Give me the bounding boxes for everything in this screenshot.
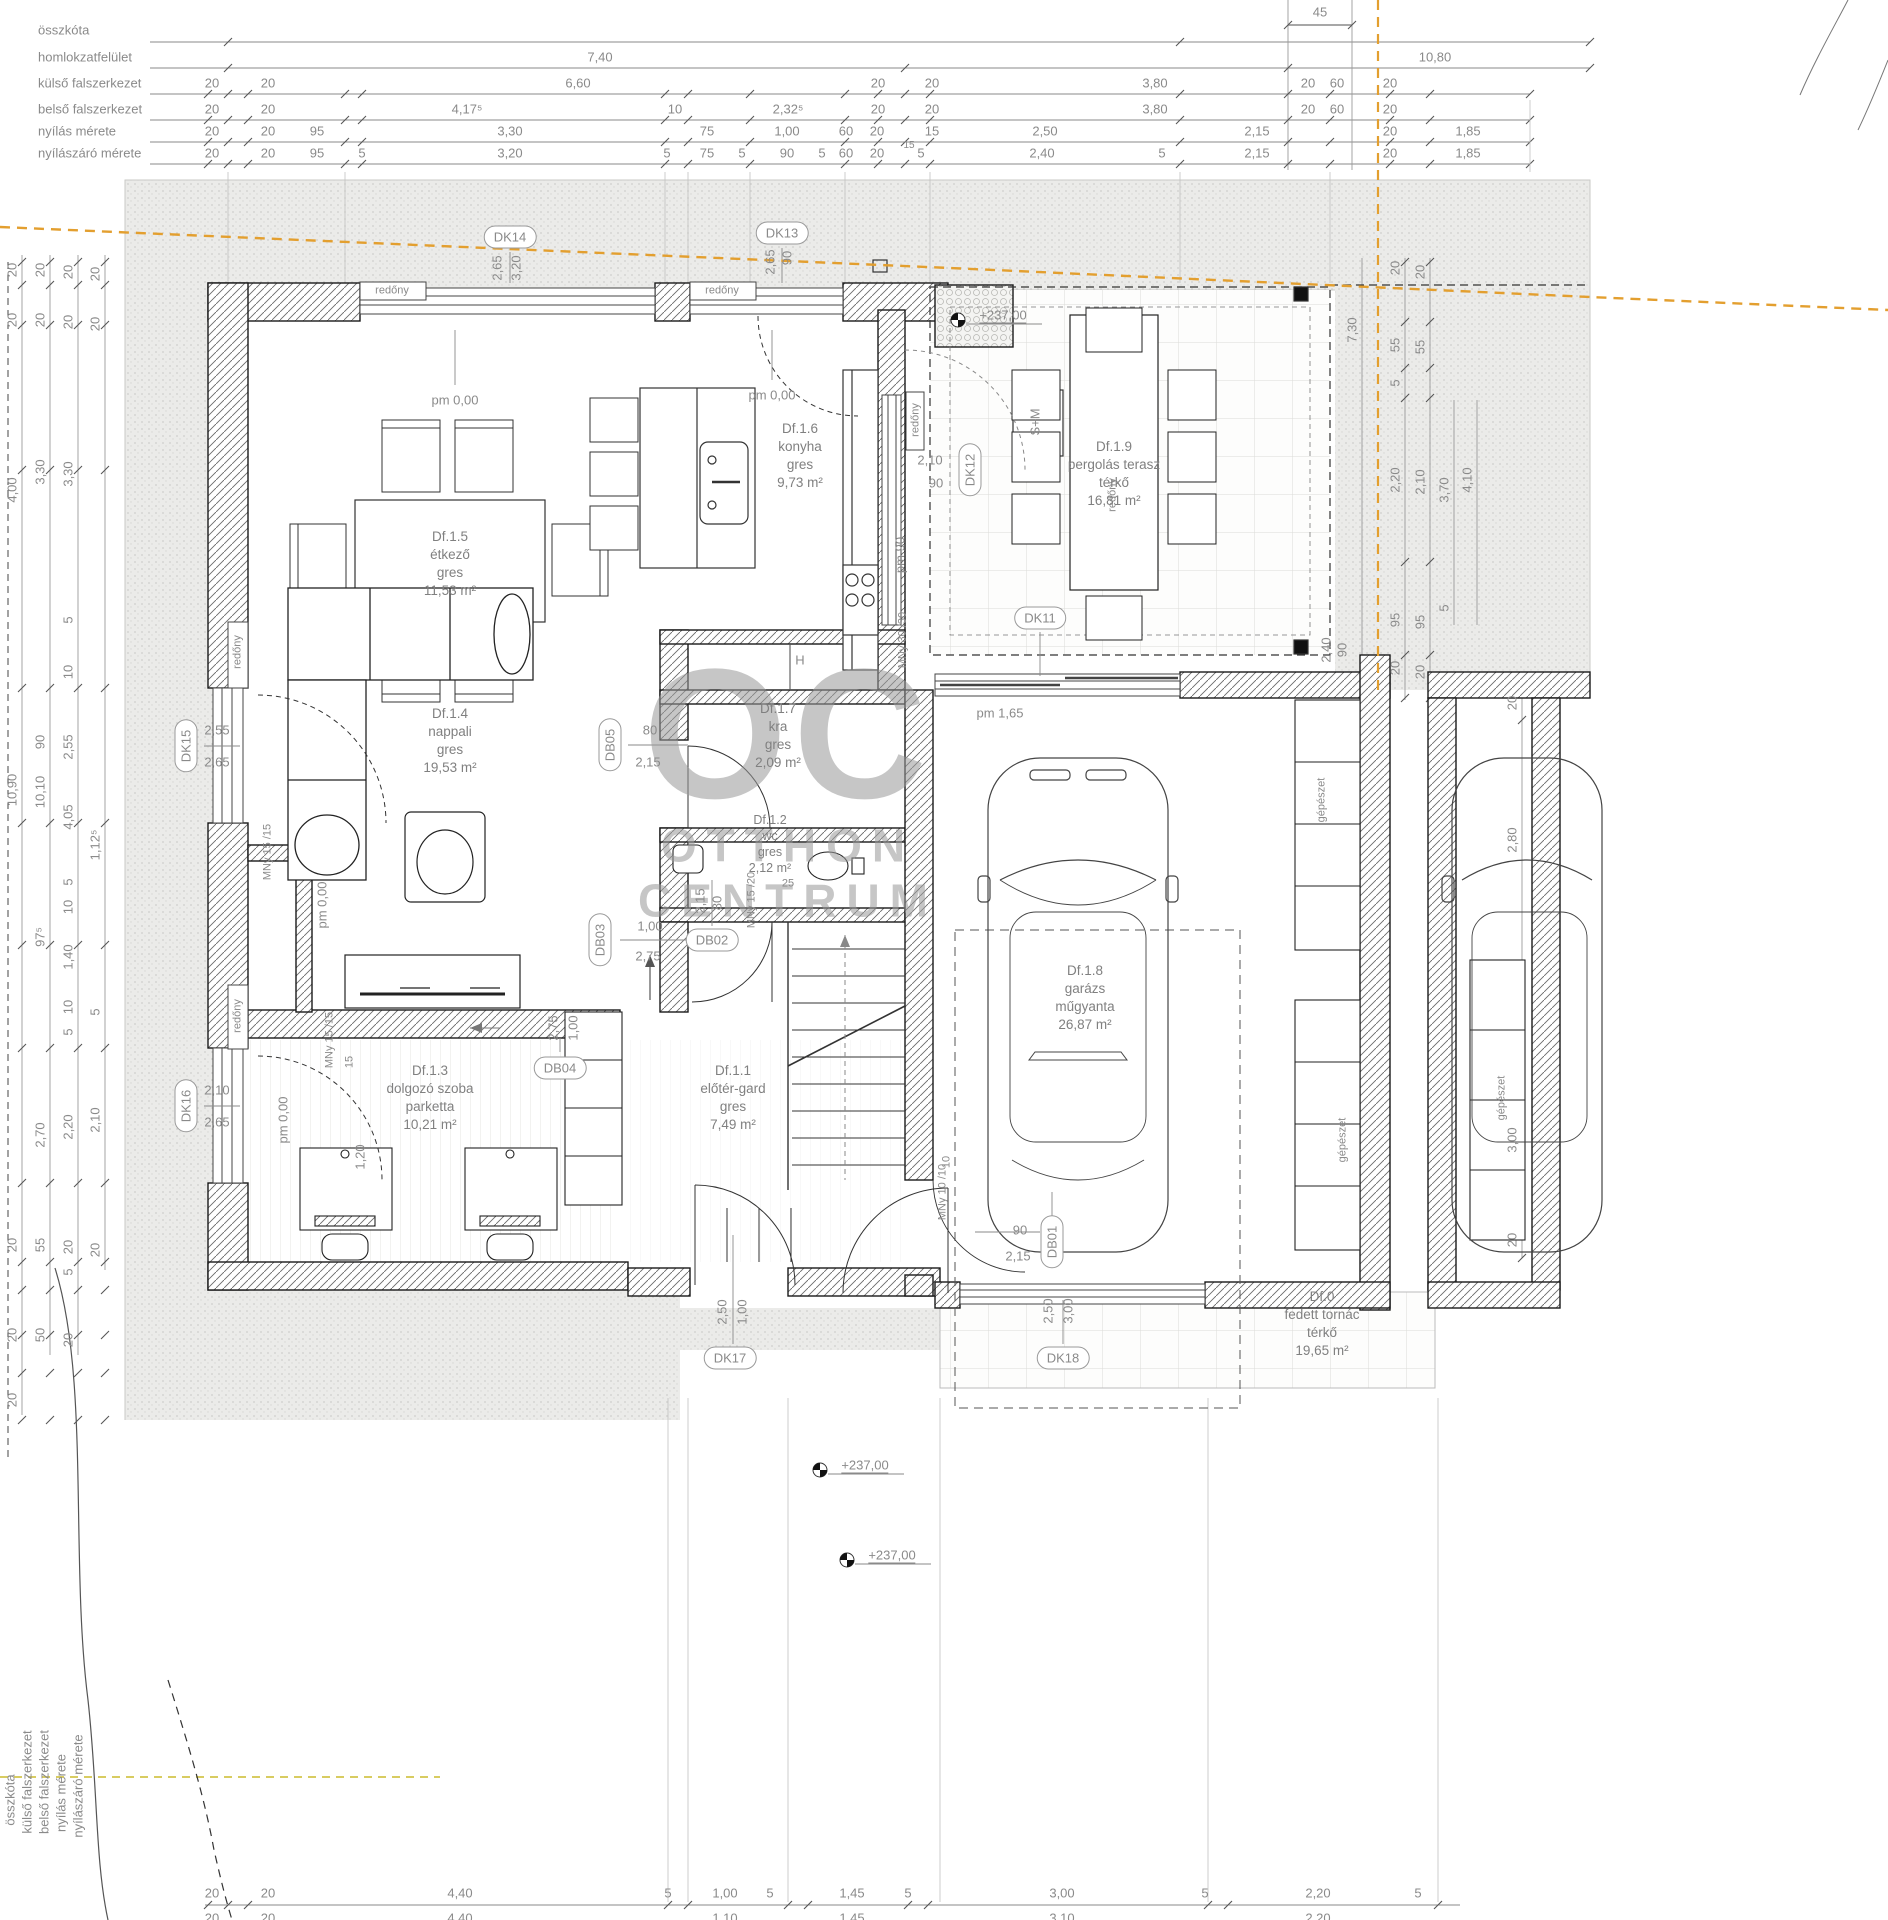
dim-label: 3,00	[1506, 1127, 1519, 1152]
dim-label: külső falszerkezet	[38, 77, 141, 90]
dim-label: 20	[261, 1887, 275, 1900]
dim-label: 45	[1313, 6, 1327, 19]
dim-label: 1,85	[1455, 125, 1480, 138]
dim-label: 20	[62, 265, 75, 279]
dim-label: 4,17⁵	[452, 103, 483, 116]
dim-label: 2,15	[1005, 1250, 1030, 1263]
room-label-Df.1.4: Df.1.4nappaligres19,53 m²	[423, 705, 476, 777]
dim-label: 2,75	[635, 950, 660, 963]
dim-label: 4,00	[6, 477, 19, 502]
dim-label: 90	[929, 477, 943, 490]
dim-label: 20	[6, 263, 19, 277]
plan-drawing	[0, 0, 1888, 1920]
dim-label: 2,50	[716, 1299, 729, 1324]
dim-label: 3,80	[1142, 103, 1167, 116]
dim-label: 20	[1506, 1233, 1519, 1247]
dim-label: MNy 15 /15	[263, 824, 274, 880]
dim-label: redőny	[911, 403, 922, 437]
dim-label: 20	[62, 1333, 75, 1347]
armchair	[405, 812, 485, 902]
dim-label: 25	[782, 879, 794, 890]
dim-label: 5	[917, 147, 924, 160]
dim-label: nyílászáró mérete	[38, 147, 141, 160]
dim-label: 90	[780, 147, 794, 160]
dim-label: 90	[1336, 643, 1349, 657]
dim-label: 20	[62, 1240, 75, 1254]
dim-label: 60	[1330, 77, 1344, 90]
dim-label: 5	[358, 147, 365, 160]
dim-label: 10,10	[34, 776, 47, 809]
dim-label: 15	[925, 125, 939, 138]
opening-tag-DB03: DB03	[589, 914, 612, 967]
dim-label: 20	[205, 103, 219, 116]
opening-tag-DK17: DK17	[704, 1347, 757, 1370]
opening-tag-DB02: DB02	[686, 929, 739, 952]
dim-label: 2,70	[34, 1122, 47, 1147]
dim-label: 10	[62, 1000, 75, 1014]
dim-label: gépészet	[1338, 1118, 1349, 1163]
dim-label: 1,85	[1455, 147, 1480, 160]
dim-label: 20	[870, 147, 884, 160]
dim-label: 7,30	[1346, 317, 1359, 342]
dim-label: 5	[663, 147, 670, 160]
room-label-Df.1.2: Df.1.2wcgres2,12 m²	[749, 812, 791, 876]
dim-label: 1,45	[839, 1887, 864, 1900]
dim-label: 5	[738, 147, 745, 160]
dim-label: 2,50	[1032, 125, 1057, 138]
dim-label: 5	[62, 616, 75, 623]
dim-label: pm 90	[894, 537, 907, 573]
dim-label: 20	[205, 1912, 219, 1920]
dim-label: 2,55	[62, 734, 75, 759]
dim-label: 20	[1506, 696, 1519, 710]
dim-label: pm 0,00	[432, 394, 479, 407]
dim-label: pm 0,00	[316, 882, 329, 929]
dim-label: 20	[261, 103, 275, 116]
opening-tag-DK12: DK12	[959, 444, 982, 497]
dim-label: 10	[62, 900, 75, 914]
dim-label: 2,65	[764, 249, 777, 274]
floor-plan-canvas: OC OTTHON CENTRUM összkótahomlokzatfelül…	[0, 0, 1888, 1920]
dim-label: 20	[261, 125, 275, 138]
dim-label: 90	[34, 735, 47, 749]
dim-label: 15	[903, 141, 914, 151]
dim-label: 50	[34, 1328, 47, 1342]
bottom-dimension-lines	[205, 1905, 1460, 1920]
dim-label: 95	[1389, 613, 1402, 627]
dim-label: 20	[925, 77, 939, 90]
dim-label: 20	[6, 1393, 19, 1407]
dim-label: 20	[205, 125, 219, 138]
dim-label: 2,15	[635, 756, 660, 769]
dim-label: 2,80	[1506, 827, 1519, 852]
dim-label: belső falszerkezet	[38, 103, 142, 116]
dim-label: 2,10	[204, 1084, 229, 1097]
dim-label: 10	[668, 103, 682, 116]
dim-label: 55	[1389, 338, 1402, 352]
dim-label: 2,65	[204, 1116, 229, 1129]
dim-label: 3,30	[34, 459, 47, 484]
dim-label: 2,10	[917, 454, 942, 467]
dim-label: homlokzatfelület	[38, 51, 132, 64]
dim-label: MNy 10 /10	[938, 1164, 949, 1220]
tv-cabinet	[345, 955, 520, 1008]
dim-label: 20	[261, 1912, 275, 1920]
dim-label: 3,20	[497, 147, 522, 160]
dim-label: +237,00	[841, 1459, 888, 1474]
dim-label: 5	[1438, 604, 1451, 611]
dim-label: 1,00	[736, 1299, 749, 1324]
dim-label: 55	[1414, 340, 1427, 354]
dim-label: 6,60	[565, 77, 590, 90]
dim-label: 20	[1383, 103, 1397, 116]
dim-label: redőny	[233, 999, 244, 1033]
dim-label: 20	[205, 147, 219, 160]
dim-label: 3,20	[510, 255, 523, 280]
dim-label: 2,20	[62, 1114, 75, 1139]
dim-label: 20	[6, 313, 19, 327]
opening-tag-DK18: DK18	[1037, 1347, 1090, 1370]
dim-label: 20	[89, 1243, 102, 1257]
opening-tag-DK11: DK11	[1014, 607, 1066, 630]
dim-label: 2,20	[1305, 1887, 1330, 1900]
dim-label: 3,10	[1049, 1912, 1074, 1920]
dim-label: 90	[781, 251, 794, 265]
dim-label: 5	[818, 147, 825, 160]
dim-label: 10,90	[6, 774, 19, 807]
dim-label: redőny	[375, 286, 409, 297]
dim-label: 3,30	[62, 461, 75, 486]
dim-label: 95	[310, 125, 324, 138]
dim-label: 97⁵	[34, 927, 47, 947]
dim-label: 20	[1389, 261, 1402, 275]
dim-label: külső falszerkezet	[21, 1730, 34, 1833]
dim-label: 1,00	[637, 920, 662, 933]
dim-label: 20	[205, 1887, 219, 1900]
dim-label: 60	[839, 125, 853, 138]
dim-label: 2,15	[694, 888, 707, 913]
room-label-Df.0: Df.0fedett tornáctérkő19,65 m²	[1284, 1288, 1359, 1360]
opening-tag-DK16: DK16	[175, 1080, 198, 1133]
dim-label: +237,00	[868, 1549, 915, 1564]
dim-label: MNy 15 /15	[325, 1012, 336, 1068]
dim-label: 20	[1389, 661, 1402, 675]
dim-label: 5	[766, 1887, 773, 1900]
dim-label: 4,05	[62, 804, 75, 829]
dim-label: 20	[1301, 77, 1315, 90]
dim-label: 1,10	[712, 1912, 737, 1920]
dim-label: gépészet	[1497, 1076, 1508, 1121]
dim-label: 20	[34, 263, 47, 277]
dim-label: 2,15	[1244, 125, 1269, 138]
dim-label: 2,10	[89, 1107, 102, 1132]
dim-label: összkóta	[38, 24, 89, 37]
dim-label: nyílászáró mérete	[72, 1734, 85, 1837]
opening-tag-DB01: DB01	[1041, 1216, 1064, 1269]
dim-label: 5	[62, 1028, 75, 1035]
dim-label: 20	[89, 267, 102, 281]
dim-label: 2,32⁵	[773, 103, 804, 116]
dim-label: 20	[205, 77, 219, 90]
dim-label: +237,00	[979, 309, 1026, 324]
dim-label: 2,40	[1029, 147, 1054, 160]
dim-label: 1,12⁵	[89, 830, 102, 861]
dim-label: 20	[1414, 665, 1427, 679]
dim-label: 3,00	[1049, 1887, 1074, 1900]
dim-label: MNy 30 /30	[898, 612, 909, 668]
dim-label: 20	[6, 1238, 19, 1252]
top-dimension-lines	[150, 25, 1590, 164]
dim-label: pm 0,00	[277, 1097, 290, 1144]
hall-closet	[565, 1012, 622, 1205]
dim-label: 5	[1158, 147, 1165, 160]
dim-label: 95	[1414, 615, 1427, 629]
dim-label: 75	[700, 147, 714, 160]
dim-label: redőny	[233, 635, 244, 669]
dim-label: 2,65	[204, 756, 229, 769]
dim-label: 60	[1330, 103, 1344, 116]
dim-label: H	[795, 654, 804, 667]
dim-label: 95	[310, 147, 324, 160]
dim-label: 20	[62, 315, 75, 329]
dim-label: 90	[1013, 1224, 1027, 1237]
dim-label: gépészet	[1317, 778, 1328, 823]
dim-label: S+M	[1029, 408, 1042, 435]
dim-label: 2,40	[1320, 637, 1333, 662]
dim-label: összkóta	[4, 1774, 17, 1825]
dim-label: 60	[839, 147, 853, 160]
dim-label: 20	[6, 1328, 19, 1342]
dim-label: pm 1,65	[977, 707, 1024, 720]
dim-label: 2,15	[1244, 147, 1269, 160]
dim-label: 2,20	[1305, 1912, 1330, 1920]
dim-label: 5	[89, 1008, 102, 1015]
dim-label: nyílás mérete	[38, 125, 116, 138]
dim-label: 4,10	[1461, 467, 1474, 492]
dim-label: 20	[1383, 77, 1397, 90]
dim-label: 75	[700, 125, 714, 138]
dim-label: 80	[711, 896, 724, 910]
dim-label: 5	[664, 1887, 671, 1900]
dim-label: pm 0,00	[749, 389, 796, 402]
dim-label: 80	[643, 724, 657, 737]
dim-label: 1,40	[62, 944, 75, 969]
room-label-Df.1.5: Df.1.5étkezőgres11,53 m²	[424, 528, 476, 600]
dim-label: 3,30	[497, 125, 522, 138]
dim-label: 20	[34, 313, 47, 327]
garage-shelves	[1295, 700, 1525, 1250]
room-label-Df.1.1: Df.1.1előtér-gardgres7,49 m²	[700, 1062, 765, 1134]
dim-label: 1,20	[354, 1144, 367, 1169]
dim-label: 55	[34, 1238, 47, 1252]
dim-label: 3,00	[1062, 1298, 1075, 1323]
dim-label: 2,75	[547, 1015, 560, 1040]
dim-label: 20	[1383, 147, 1397, 160]
dim-label: 20	[1301, 103, 1315, 116]
dim-label: belső falszerkezet	[38, 1730, 51, 1834]
dim-label: 20	[89, 317, 102, 331]
dim-label: 2,65	[491, 255, 504, 280]
dim-label: 10,80	[1419, 51, 1452, 64]
room-label-Df.1.3: Df.1.3dolgozó szobaparketta10,21 m²	[386, 1062, 473, 1134]
dim-label: 20	[925, 103, 939, 116]
room-label-Df.1.6: Df.1.6konyhagres9,73 m²	[777, 420, 823, 492]
dim-label: 2,50	[1042, 1298, 1055, 1323]
dim-label: 20	[1414, 265, 1427, 279]
dim-label: 4,40	[447, 1912, 472, 1920]
opening-tag-DB05: DB05	[599, 719, 622, 772]
room-label-Df.1.9: Df.1.9pergolás terasztérkő16,81 m²	[1068, 438, 1160, 510]
dim-label: 20	[261, 147, 275, 160]
dim-label: 5	[1389, 379, 1402, 386]
dim-label: 5	[904, 1887, 911, 1900]
opening-tag-DB04: DB04	[534, 1057, 587, 1080]
dim-label: 2,20	[1389, 467, 1402, 492]
opening-tag-DK13: DK13	[756, 222, 809, 245]
dim-label: 5	[62, 878, 75, 885]
dim-label: 1,00	[712, 1887, 737, 1900]
dim-label: 4,40	[447, 1887, 472, 1900]
dim-label: 3,70	[1438, 477, 1451, 502]
dim-label: MNy 15 /20	[747, 872, 758, 928]
dim-label: 20	[871, 103, 885, 116]
dim-label: 1,45	[839, 1912, 864, 1920]
dim-label: nyílás mérete	[55, 1754, 68, 1832]
room-label-Df.1.7: Df.1.7kragres2,09 m²	[755, 700, 801, 772]
dim-label: 5	[62, 1268, 75, 1275]
dim-label: 10	[942, 1156, 953, 1168]
dim-label: redőny	[705, 286, 739, 297]
dim-label: 20	[870, 125, 884, 138]
room-label-Df.1.8: Df.1.8garázsműgyanta26,87 m²	[1055, 962, 1114, 1034]
dim-label: 15	[345, 1056, 356, 1068]
dim-label: 1,00	[774, 125, 799, 138]
opening-tag-DK14: DK14	[484, 226, 537, 249]
dim-label: 2,10	[1414, 469, 1427, 494]
dim-label: 10	[62, 665, 75, 679]
dim-label: 20	[1383, 125, 1397, 138]
dim-label: 20	[871, 77, 885, 90]
dim-label: 1,00	[567, 1015, 580, 1040]
dim-label: 3,80	[1142, 77, 1167, 90]
dim-label: 2,55	[204, 724, 229, 737]
dim-label: 5	[1201, 1887, 1208, 1900]
opening-tag-DK15: DK15	[175, 720, 198, 773]
dim-label: 20	[261, 77, 275, 90]
dim-label: 7,40	[587, 51, 612, 64]
dim-label: 5	[1414, 1887, 1421, 1900]
